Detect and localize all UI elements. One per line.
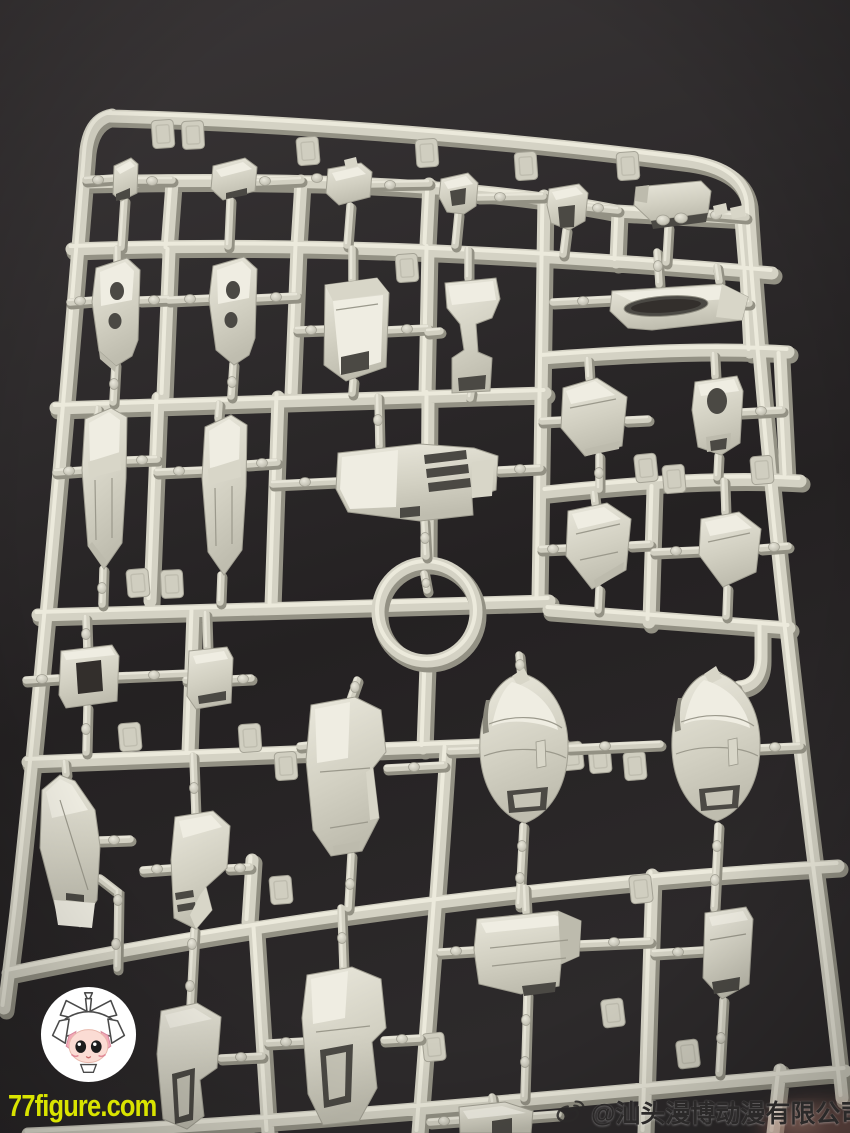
- vignette-overlay: [0, 0, 850, 1133]
- weibo-handle-text: @汕头漫博动漫有限公司: [591, 1094, 850, 1130]
- weibo-watermark: @汕头漫博动漫有限公司: [556, 1094, 850, 1130]
- mascot-chibi-icon: [40, 986, 137, 1083]
- sprue-photo: 77figure.com @汕头漫博动漫有限公司: [0, 0, 850, 1133]
- weibo-logo-icon: [556, 1100, 585, 1124]
- sprue-illustration: [0, 0, 850, 1133]
- 77figure-mascot-logo: [40, 986, 137, 1083]
- watermark-site-url: 77figure.com: [8, 1088, 156, 1124]
